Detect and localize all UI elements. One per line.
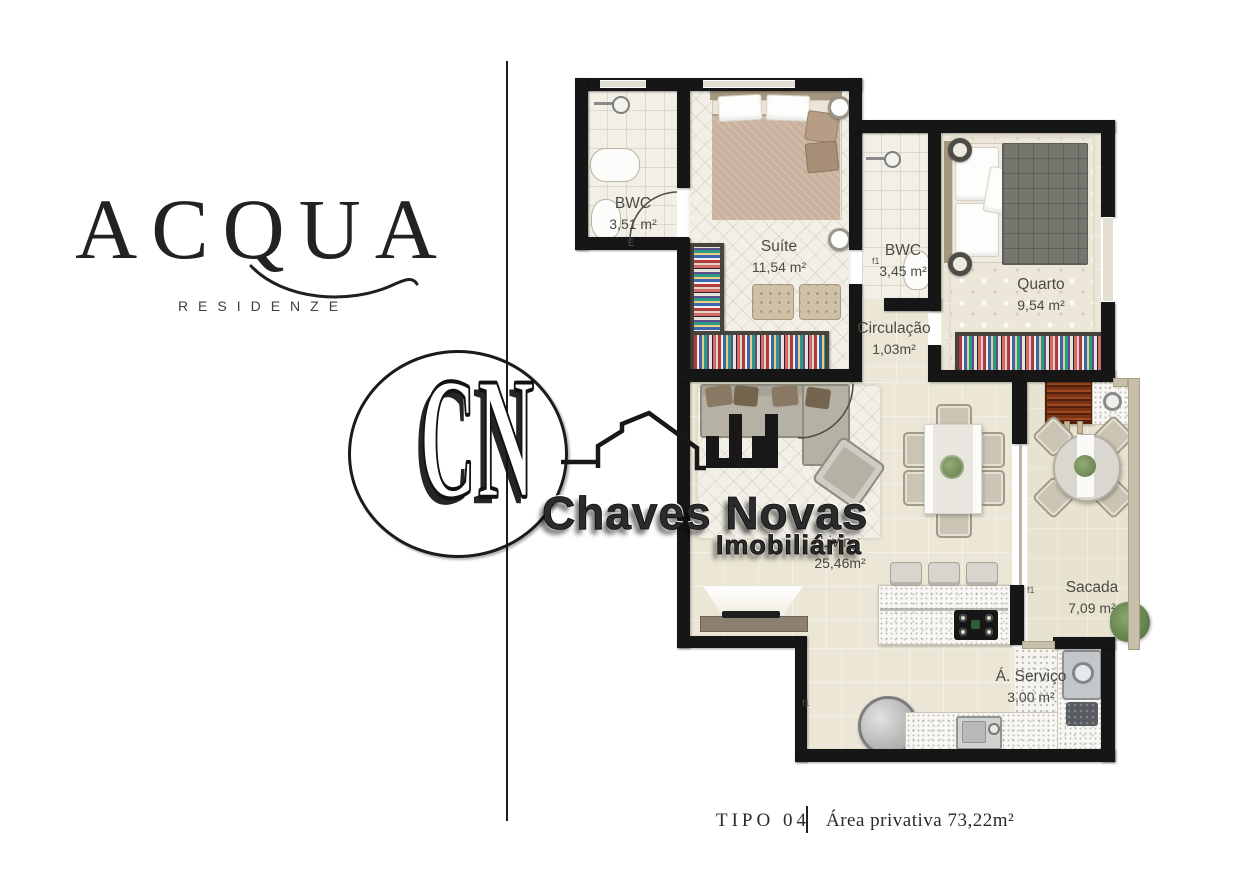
watermark-key-house-icon bbox=[0, 0, 1252, 884]
key-house-outline bbox=[561, 413, 706, 468]
key-teeth bbox=[706, 414, 778, 468]
flyer-page: ACQUA RESIDENZE bbox=[0, 0, 1252, 884]
